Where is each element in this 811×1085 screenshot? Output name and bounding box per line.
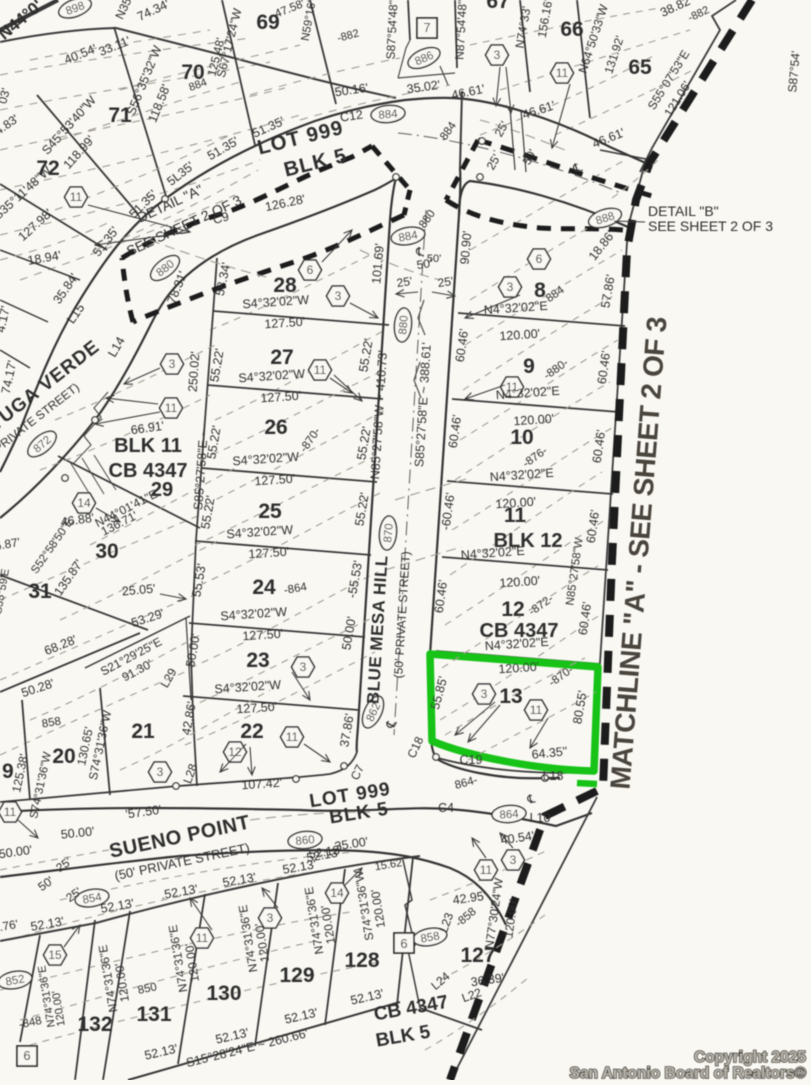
svg-text:127.50': 127.50': [264, 315, 306, 332]
svg-text:120.00': 120.00': [498, 660, 540, 677]
svg-text:DETAIL "B": DETAIL "B": [648, 203, 719, 219]
svg-text:3: 3: [510, 853, 517, 867]
svg-text:6: 6: [400, 936, 407, 951]
svg-text:9: 9: [2, 760, 14, 783]
svg-text:22: 22: [240, 720, 263, 743]
svg-text:67: 67: [486, 0, 509, 13]
svg-text:31: 31: [28, 580, 52, 603]
svg-text:BLK 11: BLK 11: [114, 435, 182, 457]
svg-text:15: 15: [48, 948, 62, 962]
svg-text:130: 130: [206, 982, 241, 1005]
svg-text:90.90': 90.90': [458, 230, 475, 265]
svg-text:50': 50': [416, 256, 433, 272]
svg-text:6: 6: [536, 252, 543, 266]
svg-text:25: 25: [258, 500, 282, 523]
svg-text:3: 3: [507, 280, 514, 294]
svg-text:Copyright 2025: Copyright 2025: [694, 1049, 806, 1066]
svg-text:860: 860: [295, 834, 315, 848]
svg-text:11: 11: [165, 401, 178, 415]
svg-text:24: 24: [252, 576, 276, 599]
svg-text:128: 128: [344, 949, 379, 972]
svg-text:120.00': 120.00': [499, 574, 541, 591]
svg-text:11: 11: [314, 363, 327, 377]
svg-text:3: 3: [335, 289, 342, 303]
svg-text:11: 11: [286, 730, 299, 744]
svg-text:3: 3: [267, 911, 274, 925]
svg-text:127.50': 127.50': [254, 472, 296, 489]
svg-text:30: 30: [95, 540, 118, 563]
svg-text:120.00': 120.00': [513, 412, 555, 429]
svg-text:11: 11: [530, 703, 543, 717]
svg-text:13: 13: [499, 685, 522, 708]
svg-text:11: 11: [196, 931, 209, 945]
svg-text:C4: C4: [438, 801, 454, 815]
svg-text:14: 14: [77, 496, 91, 510]
svg-text:9: 9: [523, 355, 535, 378]
svg-text:21: 21: [131, 720, 155, 743]
svg-text:250.02': 250.02': [186, 351, 203, 393]
svg-text:25.05': 25.05': [121, 582, 156, 599]
svg-text:12: 12: [228, 745, 242, 759]
svg-text:127.50': 127.50': [248, 545, 290, 562]
svg-text:120.00': 120.00': [499, 327, 541, 344]
svg-text:127.50': 127.50': [242, 627, 284, 644]
svg-text:129: 129: [279, 964, 314, 987]
svg-text:864: 864: [499, 808, 520, 821]
svg-text:132: 132: [77, 1013, 112, 1036]
svg-text:L18: L18: [543, 769, 564, 783]
svg-text:14: 14: [330, 886, 344, 900]
svg-text:870: 870: [382, 523, 396, 543]
svg-text:25': 25': [437, 274, 454, 290]
svg-text:25': 25': [396, 274, 413, 290]
svg-text:11: 11: [70, 190, 83, 204]
svg-text:11: 11: [4, 805, 17, 819]
svg-text:12: 12: [501, 598, 524, 621]
svg-text:6: 6: [23, 1048, 30, 1063]
svg-text:127.50': 127.50': [260, 389, 302, 406]
svg-text:7: 7: [423, 20, 430, 35]
svg-text:3: 3: [157, 765, 164, 779]
svg-text:27: 27: [270, 346, 293, 369]
svg-text:11: 11: [480, 863, 493, 877]
svg-text:C19: C19: [460, 753, 483, 767]
svg-text:3: 3: [300, 660, 307, 674]
svg-text:3: 3: [494, 48, 501, 62]
svg-text:107.42': 107.42': [241, 776, 283, 793]
svg-text:65: 65: [628, 56, 652, 79]
svg-text:10: 10: [510, 426, 533, 449]
svg-text:SEE SHEET 2 OF 3: SEE SHEET 2 OF 3: [648, 218, 773, 234]
svg-text:3: 3: [481, 687, 488, 701]
svg-text:3: 3: [169, 357, 176, 371]
svg-text:884: 884: [378, 108, 399, 122]
svg-text:20: 20: [52, 745, 75, 768]
svg-text:L10: L10: [530, 811, 551, 825]
svg-text:880: 880: [397, 315, 411, 335]
svg-text:23: 23: [246, 649, 269, 672]
svg-text:131: 131: [136, 1003, 171, 1026]
svg-text:66: 66: [560, 18, 583, 41]
svg-text:127.50': 127.50': [236, 700, 278, 717]
svg-text:6: 6: [307, 263, 314, 277]
svg-text:26: 26: [264, 416, 287, 439]
svg-text:11: 11: [556, 66, 569, 80]
svg-text:120.00': 120.00': [495, 495, 537, 512]
svg-text:CB 4347: CB 4347: [109, 460, 188, 482]
svg-text:San Antonio Board of Realtors®: San Antonio Board of Realtors®: [570, 1065, 807, 1080]
